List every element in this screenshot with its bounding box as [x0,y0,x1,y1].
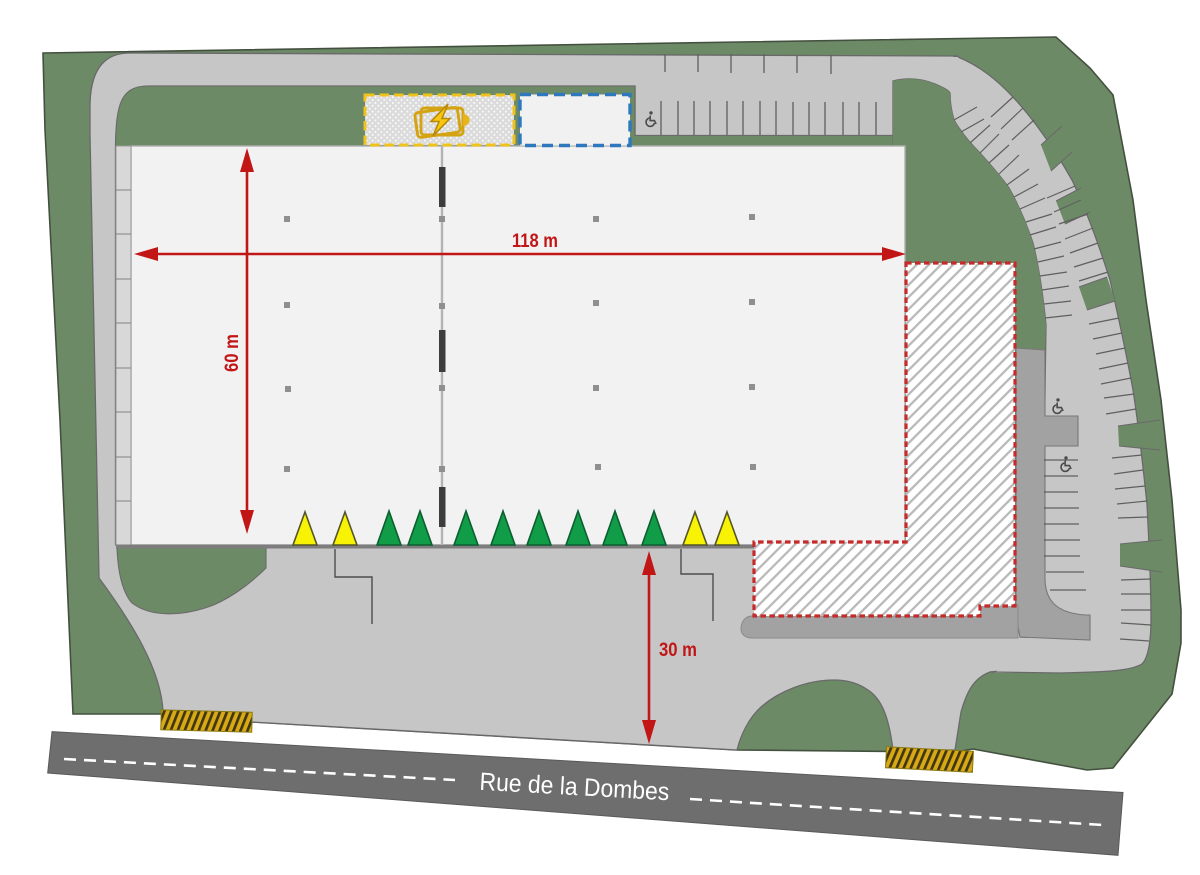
svg-text:118 m: 118 m [512,231,558,252]
svg-text:60 m: 60 m [222,334,243,372]
svg-text:30 m: 30 m [659,640,697,661]
